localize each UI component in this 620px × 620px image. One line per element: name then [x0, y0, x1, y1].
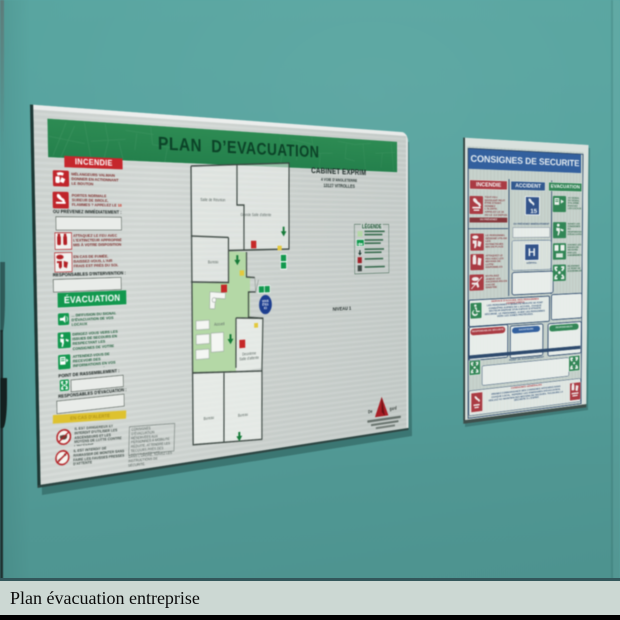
svg-text:Grande Salle d'attente: Grande Salle d'attente: [240, 212, 271, 217]
svg-text:ICI: ICI: [264, 306, 267, 310]
svg-text:Salle de Réunion: Salle de Réunion: [200, 197, 226, 202]
svg-text:Accueil: Accueil: [214, 322, 225, 327]
svg-text:Bureau: Bureau: [208, 260, 219, 265]
